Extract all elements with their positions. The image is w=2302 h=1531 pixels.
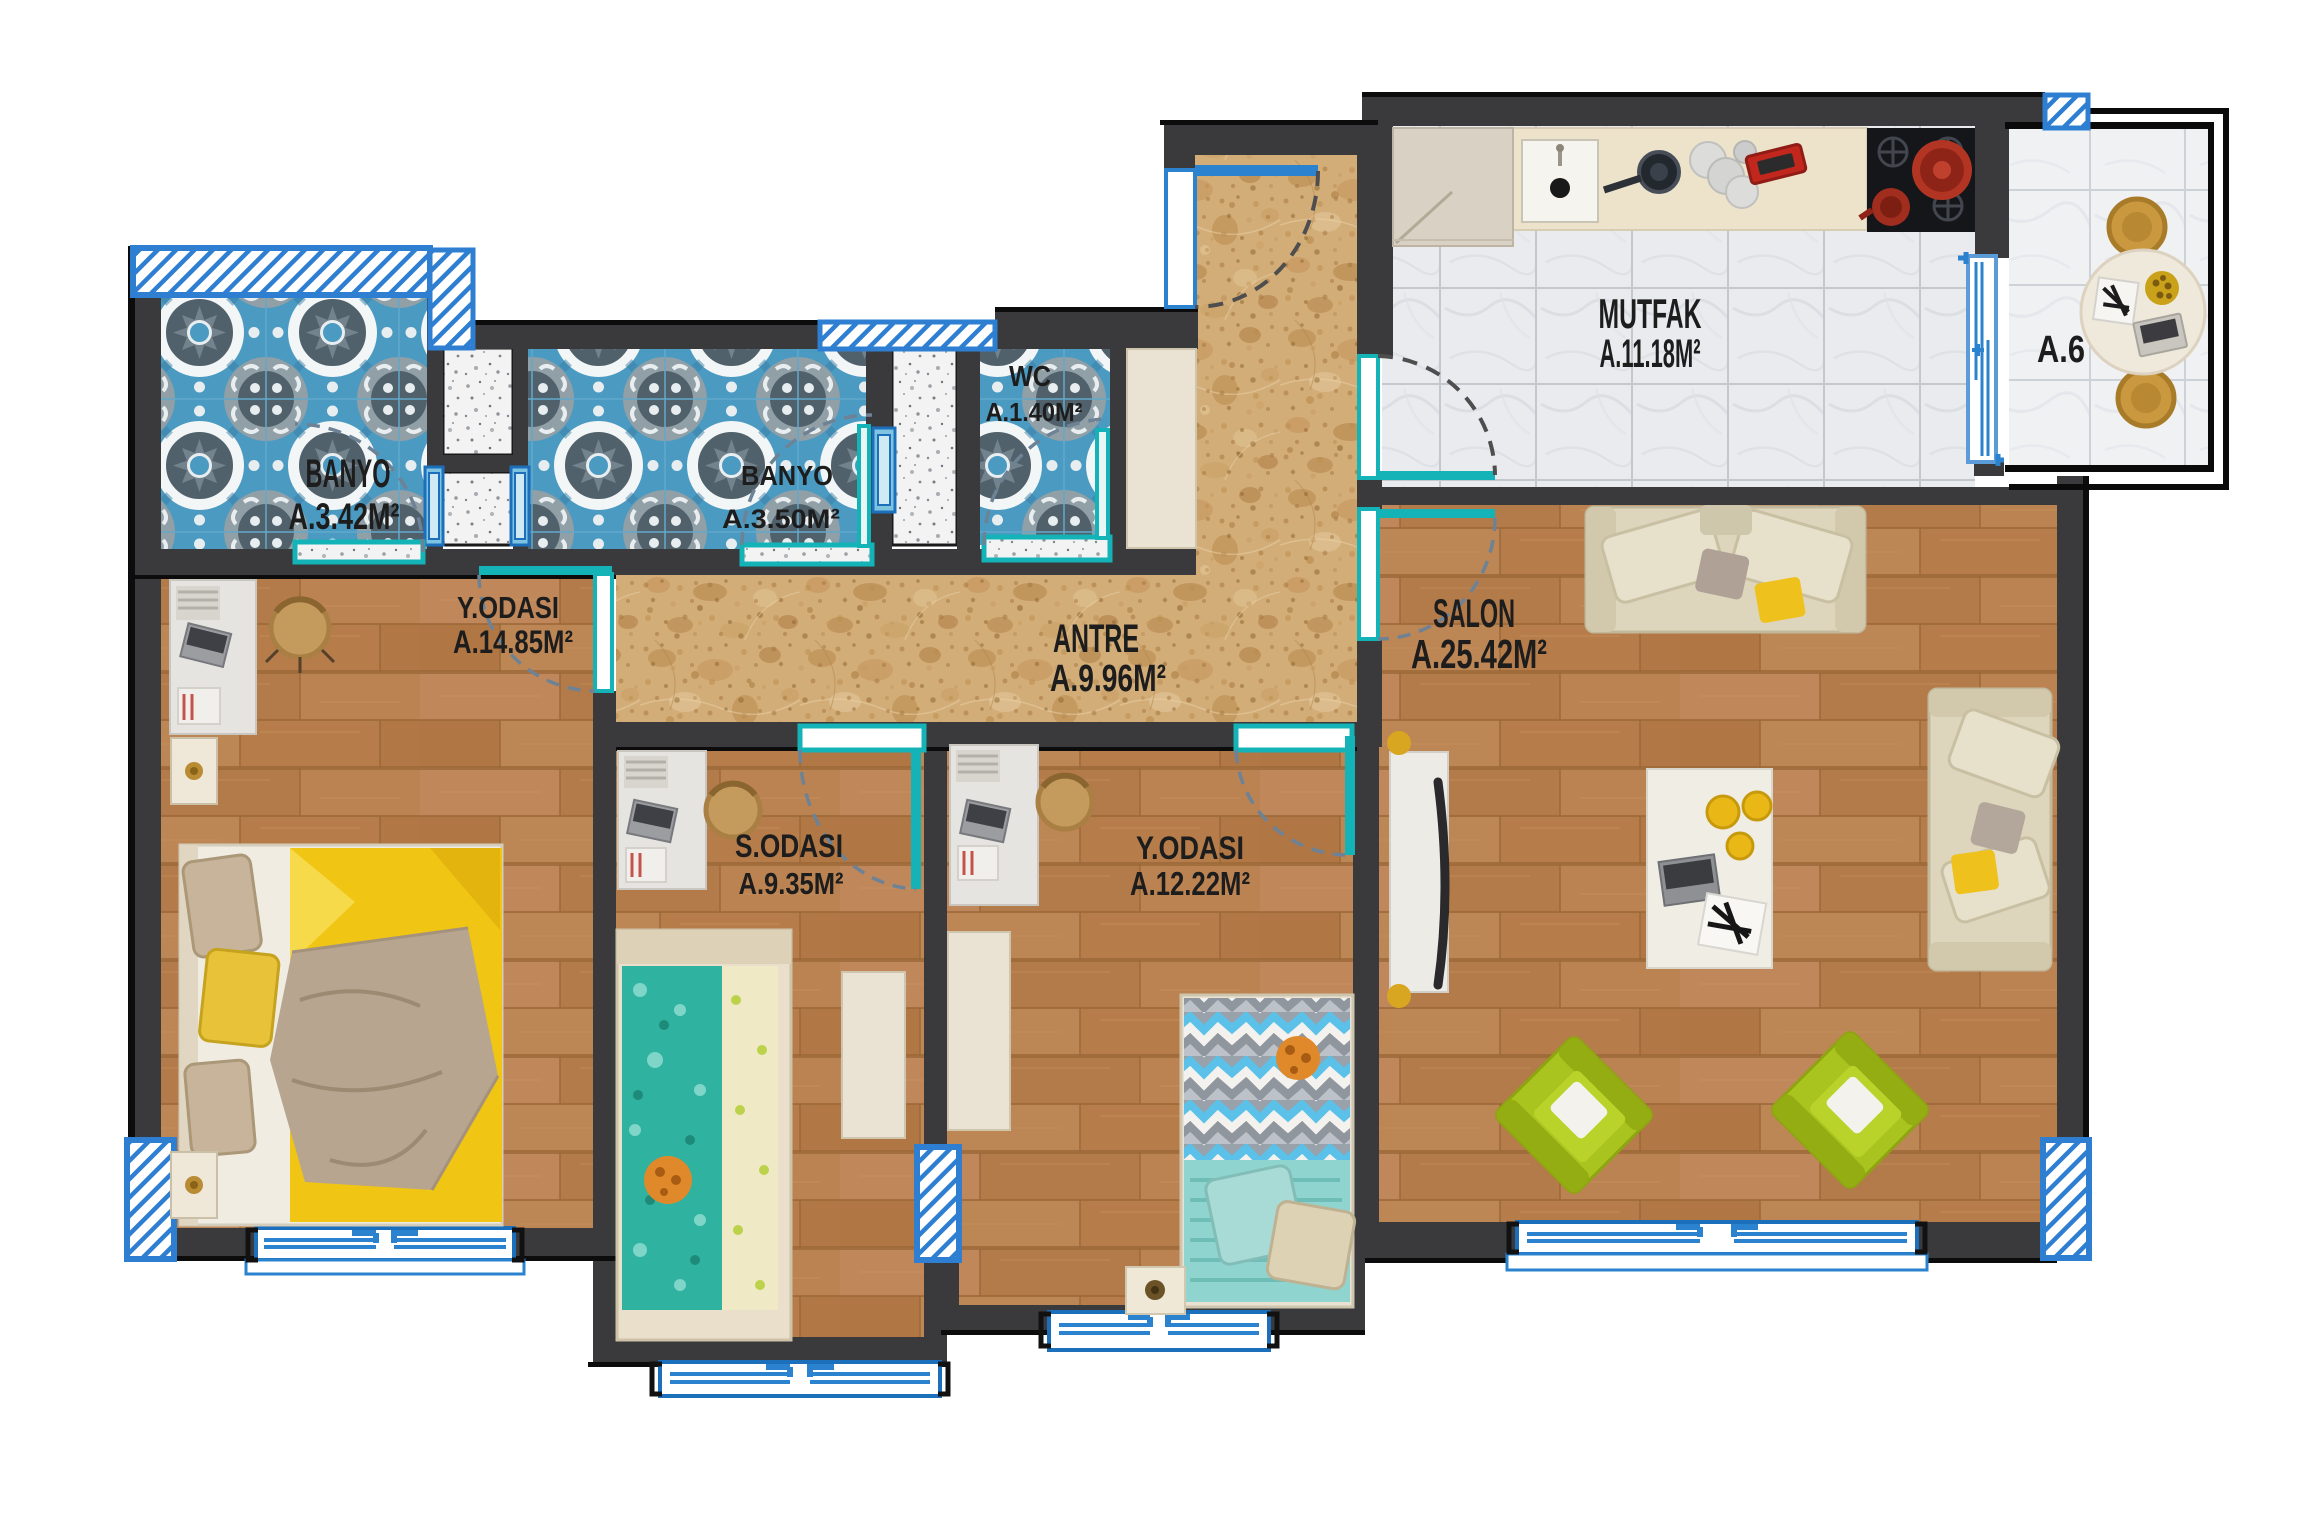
svg-text:Y.ODASI: Y.ODASI bbox=[457, 590, 559, 625]
svg-text:WC: WC bbox=[1009, 361, 1051, 393]
svg-text:A.3.50M²: A.3.50M² bbox=[722, 504, 840, 534]
svg-text:Y.ODASI: Y.ODASI bbox=[1136, 830, 1244, 866]
svg-text:A.25.42M²: A.25.42M² bbox=[1411, 631, 1547, 677]
svg-text:BANYO: BANYO bbox=[306, 452, 391, 496]
svg-text:ANTRE: ANTRE bbox=[1053, 617, 1139, 661]
svg-text:A.9.96M²: A.9.96M² bbox=[1050, 658, 1166, 700]
svg-text:A.9.35M²: A.9.35M² bbox=[739, 866, 844, 901]
svg-text:SALON: SALON bbox=[1433, 592, 1515, 636]
svg-text:A.11.18M²: A.11.18M² bbox=[1600, 332, 1701, 376]
svg-text:A.14.85M²: A.14.85M² bbox=[453, 624, 573, 660]
svg-text:S.ODASI: S.ODASI bbox=[735, 828, 843, 864]
svg-text:A.6: A.6 bbox=[2037, 329, 2085, 371]
svg-text:A.12.22M²: A.12.22M² bbox=[1130, 865, 1250, 902]
svg-text:A.1.40M²: A.1.40M² bbox=[986, 397, 1083, 427]
svg-text:A.3.42M²: A.3.42M² bbox=[289, 496, 400, 537]
svg-text:BANYO: BANYO bbox=[741, 460, 833, 491]
svg-text:MUTFAK: MUTFAK bbox=[1599, 290, 1702, 337]
